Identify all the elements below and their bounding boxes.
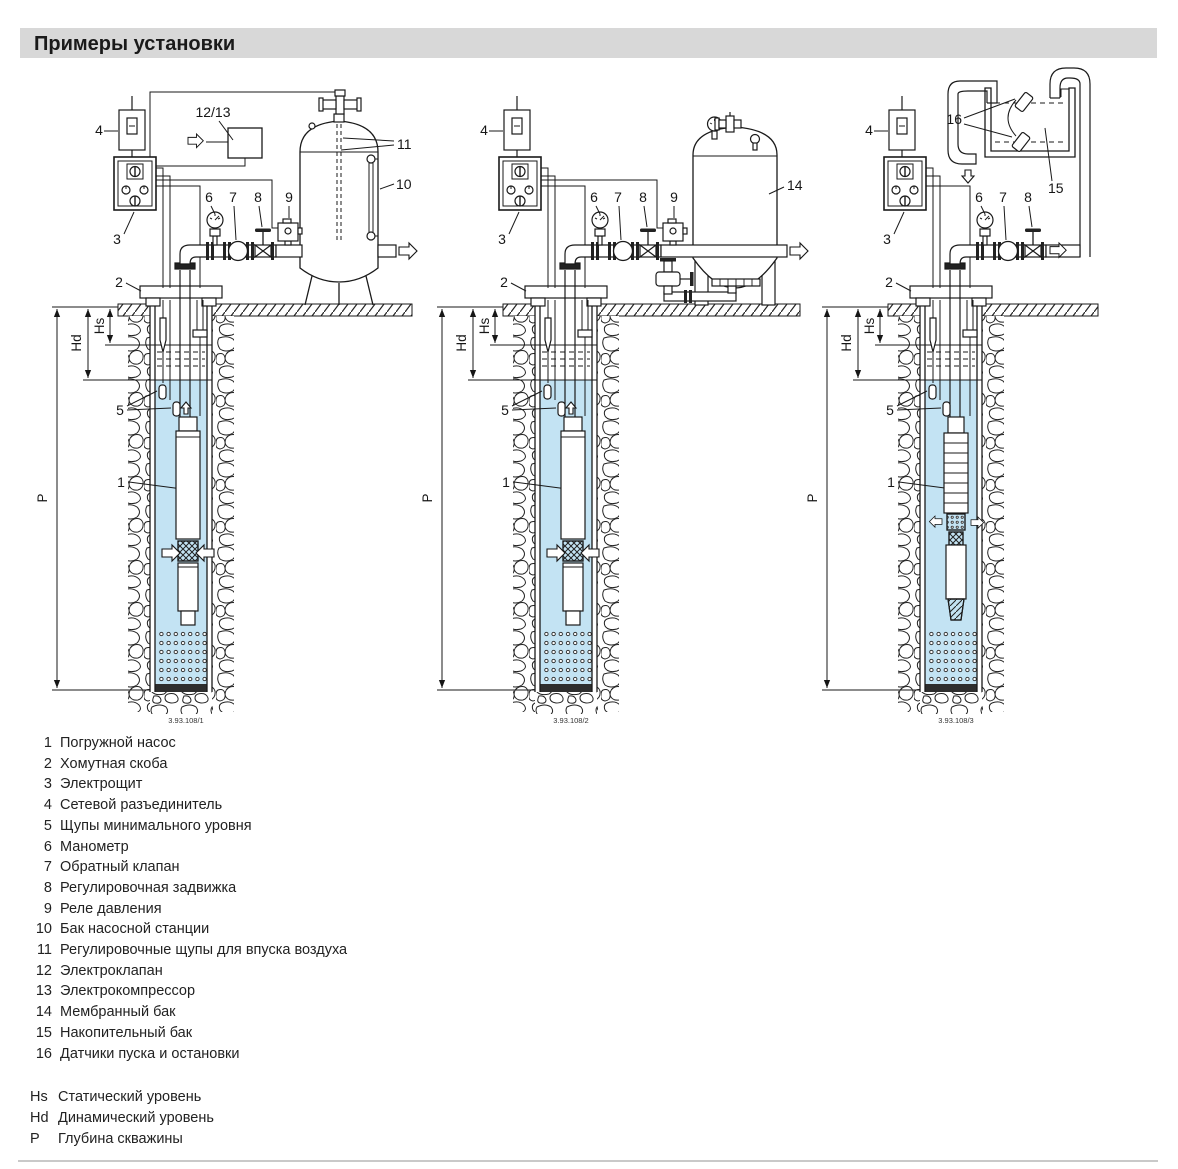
legend-item-text: Бак насосной станции: [60, 919, 209, 940]
legend-item: 3Электрощит: [30, 774, 347, 795]
installation-diagrams: 4 3 2 12/13 6 7 8 9 11 10 5 1 Hs Hd P 3.…: [0, 0, 1178, 730]
legend-item: 6Манометр: [30, 837, 347, 858]
page-title: Примеры установки: [20, 28, 1157, 58]
drawing-number: 3.93.108/2: [553, 716, 588, 725]
level-item: HdДинамический уровень: [30, 1108, 214, 1129]
label-tank: 14: [787, 177, 803, 193]
drain-valve-icon: [656, 258, 694, 294]
label-clamp: 2: [500, 274, 508, 290]
diagram-1: 4 3 2 12/13 6 7 8 9 11 10 5 1 Hs Hd P 3.…: [35, 90, 417, 725]
legend-item-text: Электрощит: [60, 774, 142, 795]
level-key: P: [30, 1129, 54, 1150]
label-panel: 3: [113, 231, 121, 247]
label-tank: 15: [1048, 180, 1064, 196]
label-reg-valve: 8: [639, 189, 647, 205]
legend-item-number: 14: [30, 1002, 52, 1023]
label-reg-valve: 8: [254, 189, 262, 205]
label-clamp: 2: [115, 274, 123, 290]
legend-item: 1Погружной насос: [30, 733, 347, 754]
pump-station-tank-icon: [300, 90, 378, 305]
bottom-divider: [18, 1160, 1158, 1162]
legend-item-text: Реле давления: [60, 899, 162, 920]
dim-label-hs: Hs: [477, 318, 492, 335]
legend-item-number: 6: [30, 837, 52, 858]
page-title-bar: Примеры установки: [20, 28, 1157, 58]
storage-tank-icon: [985, 88, 1075, 157]
label-disconnect: 4: [95, 122, 103, 138]
legend-item: 4Сетевой разъединитель: [30, 795, 347, 816]
label-disconnect: 4: [480, 122, 488, 138]
flow-out-arrow-icon: [790, 243, 808, 259]
label-pressure-switch: 9: [285, 189, 293, 205]
legend-item: 12Электроклапан: [30, 961, 347, 982]
label-probes: 5: [501, 402, 509, 418]
legend-item-text: Сетевой разъединитель: [60, 795, 222, 816]
legend-item-text: Электроклапан: [60, 961, 163, 982]
legend-item: 13Электрокомпрессор: [30, 981, 347, 1002]
ground-hatch: [597, 304, 800, 316]
label-pump: 1: [887, 474, 895, 490]
legend-item-number: 2: [30, 754, 52, 775]
diagram-2: 4 3 2 6 7 8 9 14 5 1 Hs Hd P 3.93.108/2: [420, 96, 808, 725]
tank-top-valve-icon: [319, 90, 361, 114]
legend-item-number: 3: [30, 774, 52, 795]
legend-item: 15Накопительный бак: [30, 1023, 347, 1044]
ground-hatch: [212, 304, 412, 316]
label-valve-compressor: 12/13: [195, 104, 230, 120]
legend-item: 11Регулировочные щупы для впуска воздуха: [30, 940, 347, 961]
label-sensors: 16: [946, 111, 962, 127]
label-gauge: 6: [975, 189, 983, 205]
label-pump: 1: [117, 474, 125, 490]
dim-label-p: P: [805, 493, 820, 502]
level-text: Глубина скважины: [58, 1129, 183, 1150]
label-probes: 5: [886, 402, 894, 418]
ground-hatch: [888, 304, 920, 316]
drawing-number: 3.93.108/1: [168, 716, 203, 725]
label-panel: 3: [883, 231, 891, 247]
start-stop-sensor-icon: [1015, 92, 1034, 112]
dim-label-hs: Hs: [92, 318, 107, 335]
legend-item: 10Бак насосной станции: [30, 919, 347, 940]
label-probes: 5: [116, 402, 124, 418]
drawing-number: 3.93.108/3: [938, 716, 973, 725]
flow-down-arrow-icon: [962, 170, 974, 183]
label-check-valve: 7: [229, 189, 237, 205]
legend-item-text: Хомутная скоба: [60, 754, 167, 775]
level-text: Динамический уровень: [58, 1108, 214, 1129]
dim-label-p: P: [420, 493, 435, 502]
legend-item-text: Обратный клапан: [60, 857, 180, 878]
level-key: Hd: [30, 1108, 54, 1129]
legend-item-text: Электрокомпрессор: [60, 981, 195, 1002]
ground-hatch: [982, 304, 1098, 316]
label-check-valve: 7: [614, 189, 622, 205]
legend-item: 2Хомутная скоба: [30, 754, 347, 775]
legend-item-text: Щупы минимального уровня: [60, 816, 252, 837]
legend-item-number: 5: [30, 816, 52, 837]
level-key: Hs: [30, 1087, 54, 1108]
level-item: HsСтатический уровень: [30, 1087, 214, 1108]
label-pump: 1: [502, 474, 510, 490]
label-check-valve: 7: [999, 189, 1007, 205]
legend-item: 16Датчики пуска и остановки: [30, 1044, 347, 1065]
start-stop-sensor-icon: [1012, 132, 1031, 152]
dim-label-hd: Hd: [839, 334, 854, 351]
label-gauge: 6: [205, 189, 213, 205]
legend-item-text: Регулировочная задвижка: [60, 878, 236, 899]
legend-item: 8Регулировочная задвижка: [30, 878, 347, 899]
legend-item-text: Мембранный бак: [60, 1002, 176, 1023]
legend-item-text: Регулировочные щупы для впуска воздуха: [60, 940, 347, 961]
flow-out-arrow-icon: [399, 243, 417, 259]
legend-item-number: 8: [30, 878, 52, 899]
legend-item-number: 16: [30, 1044, 52, 1065]
legend-item: 9Реле давления: [30, 899, 347, 920]
legend-item: 14Мембранный бак: [30, 1002, 347, 1023]
levels-legend: HsСтатический уровень HdДинамический уро…: [30, 1087, 214, 1150]
legend-item-text: Погружной насос: [60, 733, 176, 754]
legend-item-number: 11: [30, 940, 52, 961]
label-tank: 10: [396, 176, 412, 192]
dim-label-hd: Hd: [69, 334, 84, 351]
ground-hatch: [503, 304, 535, 316]
legend-item: 7Обратный клапан: [30, 857, 347, 878]
legend: 1Погружной насос 2Хомутная скоба 3Электр…: [30, 733, 347, 1064]
legend-item-number: 9: [30, 899, 52, 920]
legend-item-number: 7: [30, 857, 52, 878]
level-text: Статический уровень: [58, 1087, 201, 1108]
label-air-probes: 11: [397, 136, 412, 152]
dim-label-hd: Hd: [454, 334, 469, 351]
legend-item-number: 1: [30, 733, 52, 754]
legend-item-number: 15: [30, 1023, 52, 1044]
dim-label-hs: Hs: [862, 318, 877, 335]
legend-item-number: 10: [30, 919, 52, 940]
label-gauge: 6: [590, 189, 598, 205]
legend-item-text: Датчики пуска и остановки: [60, 1044, 239, 1065]
legend-item: 5Щупы минимального уровня: [30, 816, 347, 837]
label-disconnect: 4: [865, 122, 873, 138]
label-reg-valve: 8: [1024, 189, 1032, 205]
air-supply-arrow-icon: [188, 134, 203, 148]
legend-item-text: Накопительный бак: [60, 1023, 192, 1044]
ground-hatch: [118, 304, 150, 316]
diagram-3: 4 3 2 6 7 8 15 16 5 1 Hs Hd P 3.93.108/3: [805, 68, 1098, 725]
label-panel: 3: [498, 231, 506, 247]
level-item: PГлубина скважины: [30, 1129, 214, 1150]
dim-label-p: P: [35, 493, 50, 502]
legend-item-number: 12: [30, 961, 52, 982]
label-clamp: 2: [885, 274, 893, 290]
label-pressure-switch: 9: [670, 189, 678, 205]
legend-item-text: Манометр: [60, 837, 129, 858]
legend-item-number: 4: [30, 795, 52, 816]
legend-item-number: 13: [30, 981, 52, 1002]
